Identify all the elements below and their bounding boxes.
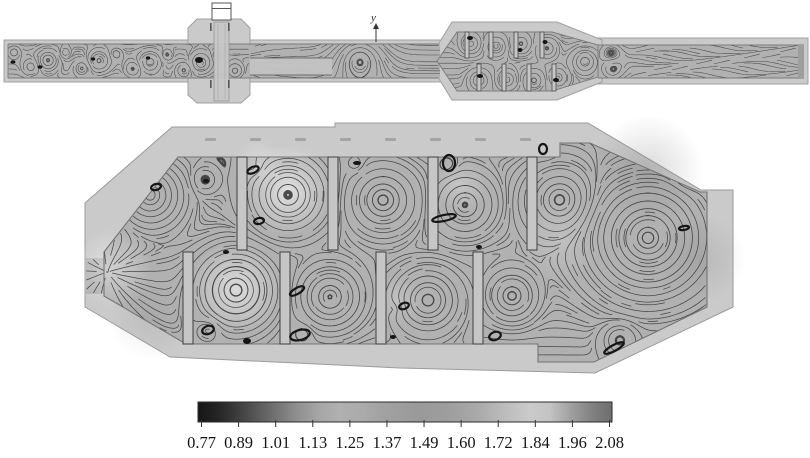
colorbar-tick-label: 1.49 <box>410 433 439 452</box>
wall-perforation-mark <box>520 138 531 141</box>
baffle <box>376 252 386 344</box>
colorbar-tick-label: 1.60 <box>447 433 476 452</box>
baffle <box>473 252 483 344</box>
baffle-mini <box>540 32 544 58</box>
vortex-core <box>476 245 482 249</box>
overview-section <box>4 3 808 103</box>
vortex-core <box>146 56 150 59</box>
colorbar-tick-label: 1.25 <box>335 433 364 452</box>
vortex-core <box>353 161 361 165</box>
vortex-core <box>518 48 523 52</box>
baffle-mini <box>465 32 469 58</box>
baffle-mini <box>552 64 556 91</box>
baffle-mini <box>502 64 506 91</box>
inner-pipe-band <box>250 58 332 75</box>
vortex-core <box>195 57 203 63</box>
wall-perforation-mark <box>385 138 396 141</box>
vortex-core <box>38 65 43 69</box>
baffle <box>237 157 247 250</box>
colorbar-tick-label: 0.77 <box>187 433 216 452</box>
vortex-core <box>243 338 251 344</box>
detail-section <box>72 115 745 373</box>
colorbar-tick-label: 1.96 <box>558 433 587 452</box>
wall-perforation-mark <box>250 138 261 141</box>
figure-page: 0.770.891.011.131.251.371.491.601.721.84… <box>0 0 810 458</box>
wall-perforation-mark <box>340 138 351 141</box>
colorbar-tick-label: 0.89 <box>224 433 253 452</box>
axis-y-label: y <box>370 12 376 24</box>
baffle-mini <box>514 32 518 58</box>
bolt-mark <box>210 80 212 88</box>
bolt-mark <box>228 23 230 31</box>
vortex-core <box>477 74 483 78</box>
cfd-figure: 0.770.891.011.131.251.371.491.601.721.84… <box>0 0 810 458</box>
colorbar-tick-label: 2.08 <box>595 433 624 452</box>
field-shade-patch <box>190 242 282 334</box>
colorbar-tick-label: 1.72 <box>484 433 513 452</box>
vortex-core <box>11 60 16 64</box>
bolt-mark <box>210 23 212 31</box>
vortex-core <box>203 179 209 183</box>
wall-perforation-mark <box>295 138 306 141</box>
vortex-core <box>543 40 548 44</box>
outlet-end-cap <box>798 45 804 78</box>
wall-perforation-mark <box>430 138 441 141</box>
baffle <box>183 252 193 344</box>
colorbar-tick-label: 1.01 <box>261 433 290 452</box>
bolt-mark <box>228 80 230 88</box>
wall-perforation-mark <box>475 138 486 141</box>
baffle <box>428 157 438 250</box>
vortex-core <box>91 57 95 60</box>
vortex-core <box>390 335 396 339</box>
mounting-bracket <box>212 3 231 20</box>
colorbar-tick-label: 1.37 <box>373 433 402 452</box>
colorbar-gradient-bar <box>198 402 612 422</box>
vertical-pipe <box>214 22 229 101</box>
vortex-core <box>223 250 229 254</box>
baffle <box>527 157 537 250</box>
colorbar: 0.770.891.011.131.251.371.491.601.721.84… <box>187 402 624 452</box>
baffle-mini <box>489 32 493 58</box>
baffle <box>280 252 290 344</box>
baffle-mini <box>527 64 531 91</box>
baffle <box>328 157 338 250</box>
vortex-core <box>467 36 473 40</box>
colorbar-tick-label: 1.13 <box>298 433 327 452</box>
wall-perforation-mark <box>205 138 216 141</box>
colorbar-tick-label: 1.84 <box>521 433 550 452</box>
vortex-core <box>553 78 559 82</box>
